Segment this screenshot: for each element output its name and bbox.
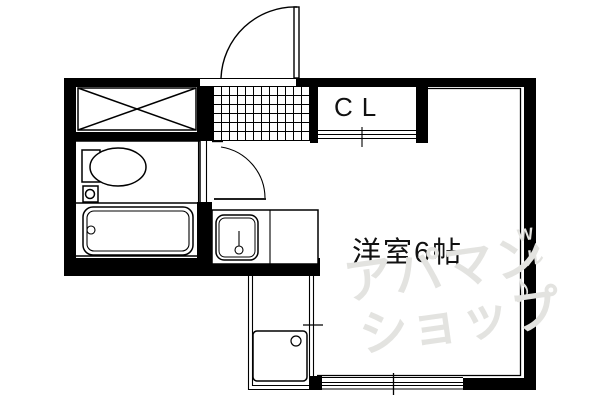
main-room-label: 洋室6帖	[352, 229, 463, 271]
wall-under-storage	[64, 132, 213, 141]
wall-window-pier	[309, 376, 322, 390]
bathtub-drain	[87, 226, 95, 234]
wall-top	[64, 78, 536, 87]
interior-door	[199, 140, 267, 202]
bathroom-block	[73, 141, 200, 256]
kitchen-sink-counter	[212, 210, 318, 264]
toilet-side-knob	[86, 190, 95, 199]
floor-plan: CL 洋室6帖 アパマン ショップ W ル ♪	[0, 0, 600, 400]
wall-closet-left	[310, 78, 318, 143]
wall-right	[524, 78, 536, 390]
washing-machine-pan	[253, 331, 307, 381]
wall-left	[64, 78, 76, 276]
wall-closet-right	[416, 78, 428, 143]
entrance-door	[221, 7, 299, 78]
sliding-window	[322, 373, 463, 395]
interior-door-swing-arc	[221, 147, 265, 198]
entrance-door-leaf	[294, 7, 299, 78]
bathtub-outer	[83, 207, 193, 255]
closet-label: CL	[334, 92, 385, 123]
floor-plan-linework	[0, 0, 600, 400]
bathtub-inner	[87, 211, 189, 251]
closet-sliding-door	[318, 127, 416, 147]
service-extension	[249, 276, 324, 390]
washing-machine-drain	[291, 336, 301, 346]
entrance-threshold	[200, 79, 296, 86]
wall-genkan-left	[197, 86, 213, 140]
crossed-storage-box	[78, 88, 196, 130]
extension-outer-line	[249, 276, 315, 390]
wall-bottom-right	[463, 378, 536, 390]
faucet-knob	[235, 246, 243, 254]
entrance-door-swing-arc	[221, 7, 297, 78]
toilet-bowl	[90, 148, 146, 186]
